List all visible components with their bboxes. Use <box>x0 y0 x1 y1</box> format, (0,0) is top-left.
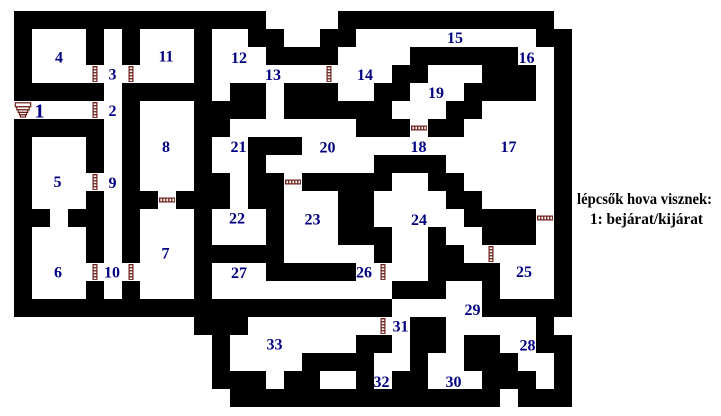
svg-text:2: 2 <box>109 103 117 120</box>
svg-text:10: 10 <box>104 265 120 282</box>
svg-text:30: 30 <box>446 374 462 391</box>
svg-text:19: 19 <box>428 85 444 102</box>
svg-text:16: 16 <box>519 50 535 67</box>
svg-text:20: 20 <box>320 140 336 157</box>
svg-text:31: 31 <box>393 319 409 336</box>
svg-text:14: 14 <box>357 67 373 84</box>
svg-text:6: 6 <box>54 265 62 282</box>
svg-text:7: 7 <box>162 246 170 263</box>
svg-text:8: 8 <box>162 139 170 156</box>
svg-text:lépcsők hova visznek:: lépcsők hova visznek: <box>577 191 712 208</box>
svg-text:26: 26 <box>356 265 372 282</box>
svg-text:11: 11 <box>158 49 173 66</box>
svg-text:1: 1 <box>35 101 45 123</box>
svg-text:17: 17 <box>501 139 517 156</box>
svg-text:15: 15 <box>447 30 463 47</box>
svg-text:27: 27 <box>231 265 247 282</box>
svg-text:3: 3 <box>109 67 117 84</box>
svg-text:29: 29 <box>465 302 481 319</box>
svg-text:13: 13 <box>265 67 281 84</box>
svg-text:22: 22 <box>229 211 245 228</box>
svg-text:4: 4 <box>55 50 63 67</box>
svg-text:1: bejárat/kijárat: 1: bejárat/kijárat <box>590 211 704 228</box>
svg-text:18: 18 <box>411 139 427 156</box>
svg-text:33: 33 <box>267 337 283 354</box>
svg-text:5: 5 <box>54 174 62 191</box>
svg-text:24: 24 <box>411 212 427 229</box>
svg-text:28: 28 <box>520 338 536 355</box>
svg-text:23: 23 <box>305 212 321 229</box>
svg-text:9: 9 <box>109 175 117 192</box>
svg-text:12: 12 <box>231 50 247 67</box>
svg-text:32: 32 <box>374 374 390 391</box>
svg-text:21: 21 <box>231 139 247 156</box>
svg-text:25: 25 <box>516 264 532 281</box>
